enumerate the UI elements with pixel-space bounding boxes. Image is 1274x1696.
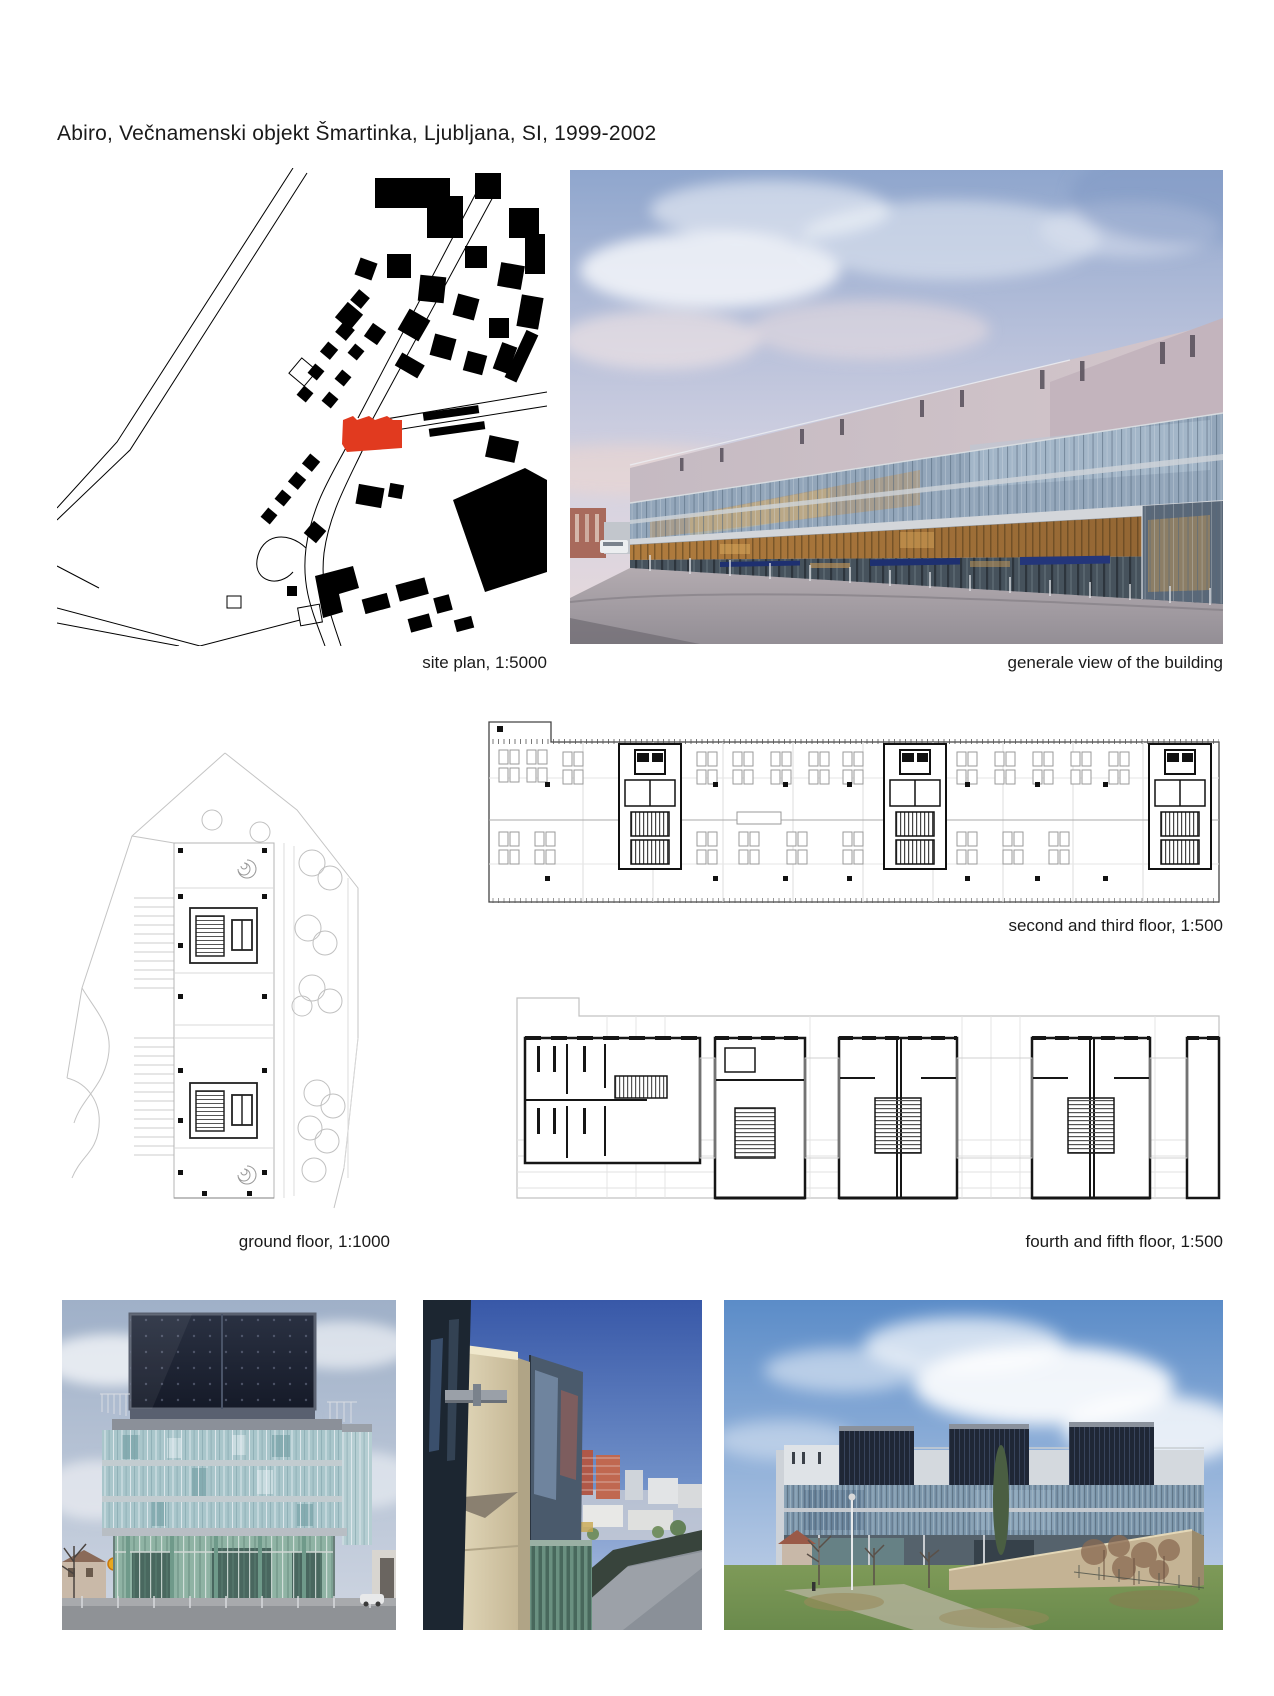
east-paths: [284, 843, 358, 1198]
apartment-unit-d: [1032, 1038, 1150, 1198]
general-view-photo: [570, 170, 1223, 644]
apartment-unit-a: [525, 1038, 700, 1163]
ground-floor-plan-image: [62, 738, 390, 1213]
ground-floor-caption: ground floor, 1:1000: [90, 1232, 390, 1252]
louver-band: [530, 1540, 592, 1630]
glass-pane: [530, 1355, 583, 1550]
parking-rows: [134, 898, 174, 1155]
dark-glass-edge: [423, 1300, 471, 1630]
site-plan-caption: site plan, 1:5000: [247, 653, 547, 673]
apartment-unit-e: [1187, 1038, 1219, 1198]
page: { "page": { "title": "Abiro, Večnamenski…: [0, 0, 1274, 1696]
site-plan-project-building: [342, 416, 402, 452]
site-plan-image: [57, 168, 547, 646]
fourth-fifth-floor-caption: fourth and fifth floor, 1:500: [823, 1232, 1223, 1252]
street: [62, 1606, 396, 1630]
building-footprint: [174, 843, 274, 1198]
photo-front-view: [62, 1300, 396, 1630]
apartment-unit-c: [839, 1038, 957, 1198]
pedestrian: [812, 1582, 816, 1591]
second-third-floor-caption: second and third floor, 1:500: [823, 916, 1223, 936]
fourth-fifth-floor-plan-image: [487, 988, 1223, 1220]
photo-park-view: [724, 1300, 1223, 1630]
plan-outline: [489, 722, 1219, 902]
page-title: Abiro, Večnamenski objekt Šmartinka, Lju…: [57, 122, 656, 146]
apartment-unit-b: [715, 1038, 805, 1198]
photo-facade-detail: [423, 1300, 702, 1630]
sidewalk: [62, 1598, 396, 1606]
general-view-caption: generale view of the building: [823, 653, 1223, 673]
second-third-floor-plan-image: [487, 712, 1223, 908]
